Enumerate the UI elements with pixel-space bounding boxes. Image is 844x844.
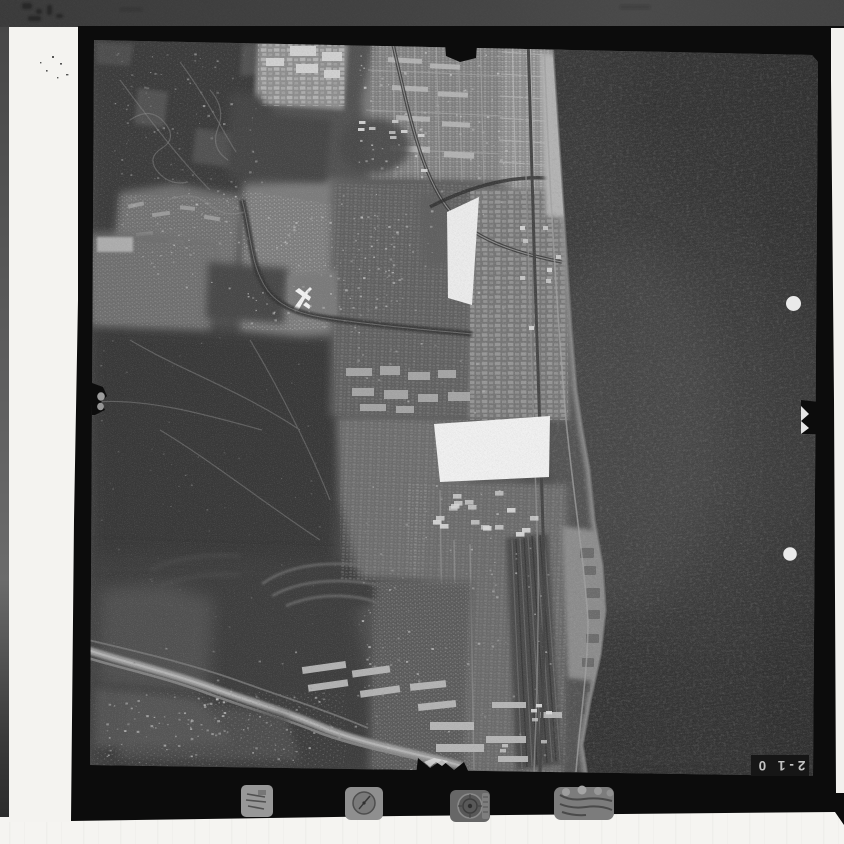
svg-text:2-1 0: 2-1 0 — [755, 758, 806, 773]
